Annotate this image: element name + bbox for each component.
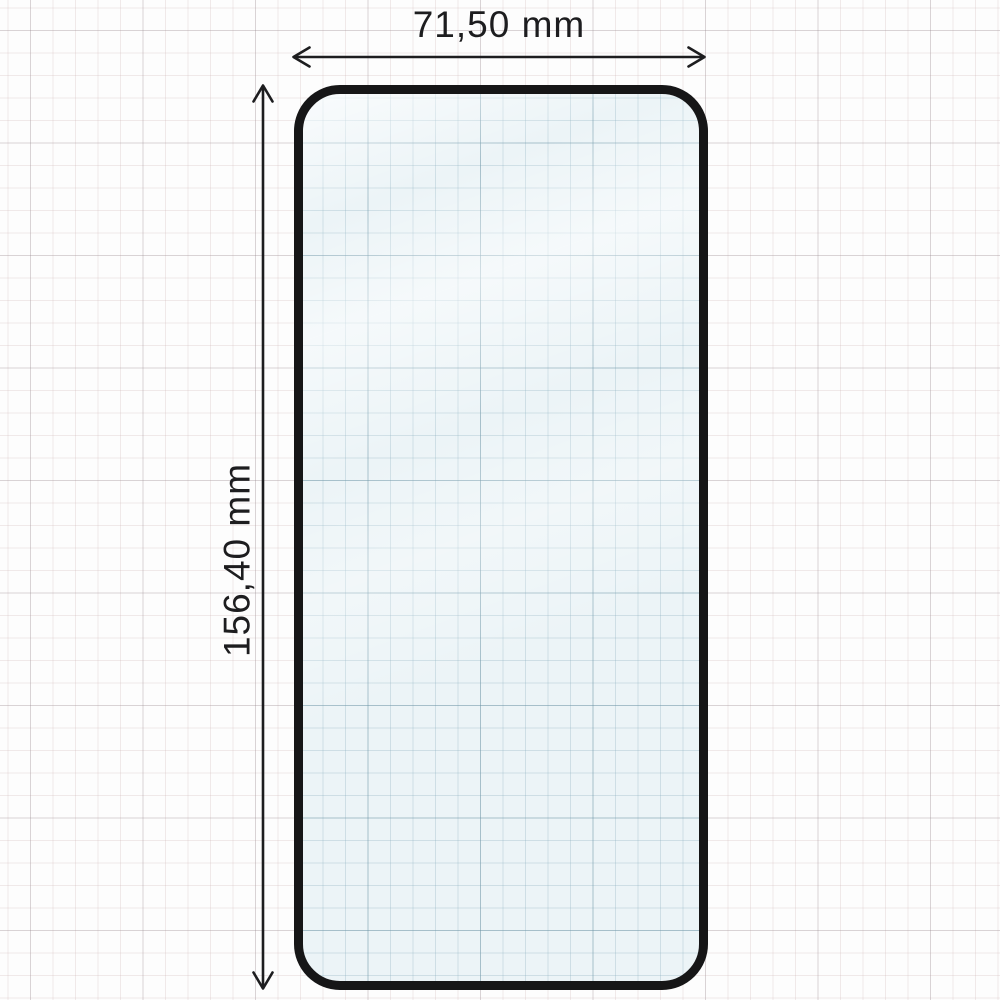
height-dimension-arrow — [250, 81, 276, 998]
vertical-double-arrow-icon — [250, 81, 276, 993]
width-dimension-label: 71,50 mm — [289, 6, 709, 43]
graph-paper-canvas: 71,50 mm 156,40 mm — [0, 0, 1000, 1000]
width-dimension-arrow — [289, 44, 709, 75]
horizontal-double-arrow-icon — [289, 44, 709, 70]
screen-protector-glass — [294, 85, 708, 990]
